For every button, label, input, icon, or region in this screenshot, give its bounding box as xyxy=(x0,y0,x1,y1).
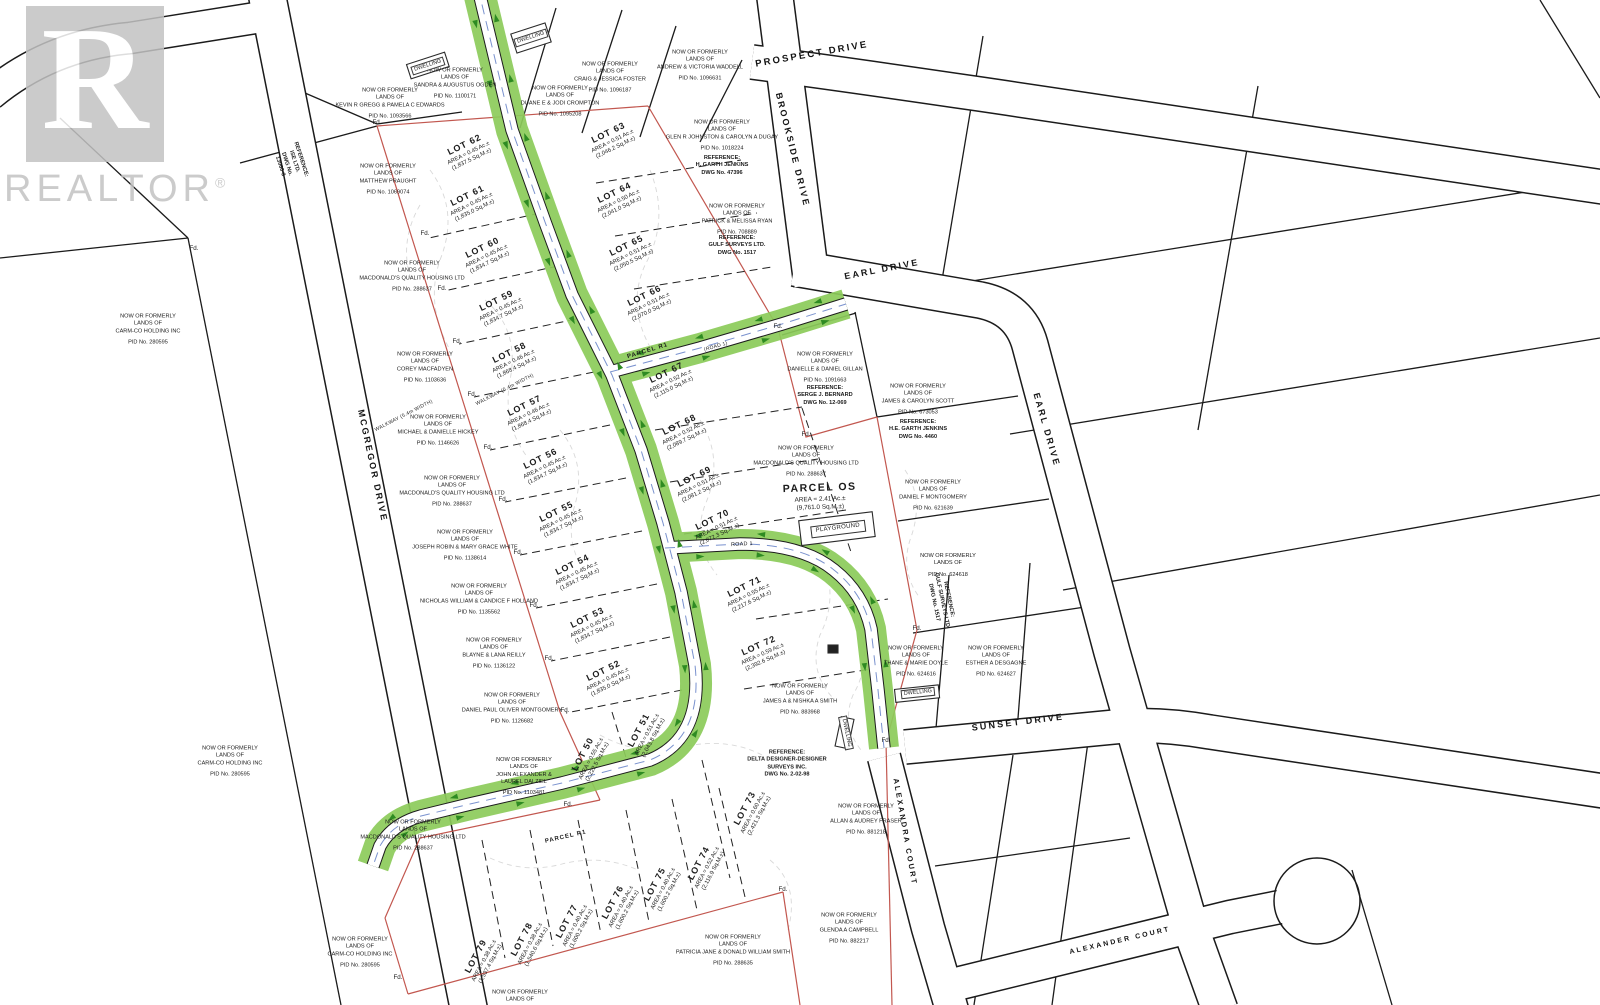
green-roads xyxy=(373,0,889,866)
realtor-logo-letter: R xyxy=(42,13,149,146)
registered-mark: ® xyxy=(215,174,230,190)
building-footprint xyxy=(828,645,838,653)
survey-linework xyxy=(0,0,1600,1005)
realtor-logo: R xyxy=(26,6,164,162)
white-roads xyxy=(0,0,1600,1005)
playground-outline xyxy=(799,512,875,546)
realtor-watermark: R REALTOR® xyxy=(26,6,230,211)
realtor-wordmark: REALTOR® xyxy=(4,168,230,211)
plat-map: LOT 62AREA = 0.45 Ac.±(1,837.5 Sq.M.±)LO… xyxy=(0,0,1600,1005)
